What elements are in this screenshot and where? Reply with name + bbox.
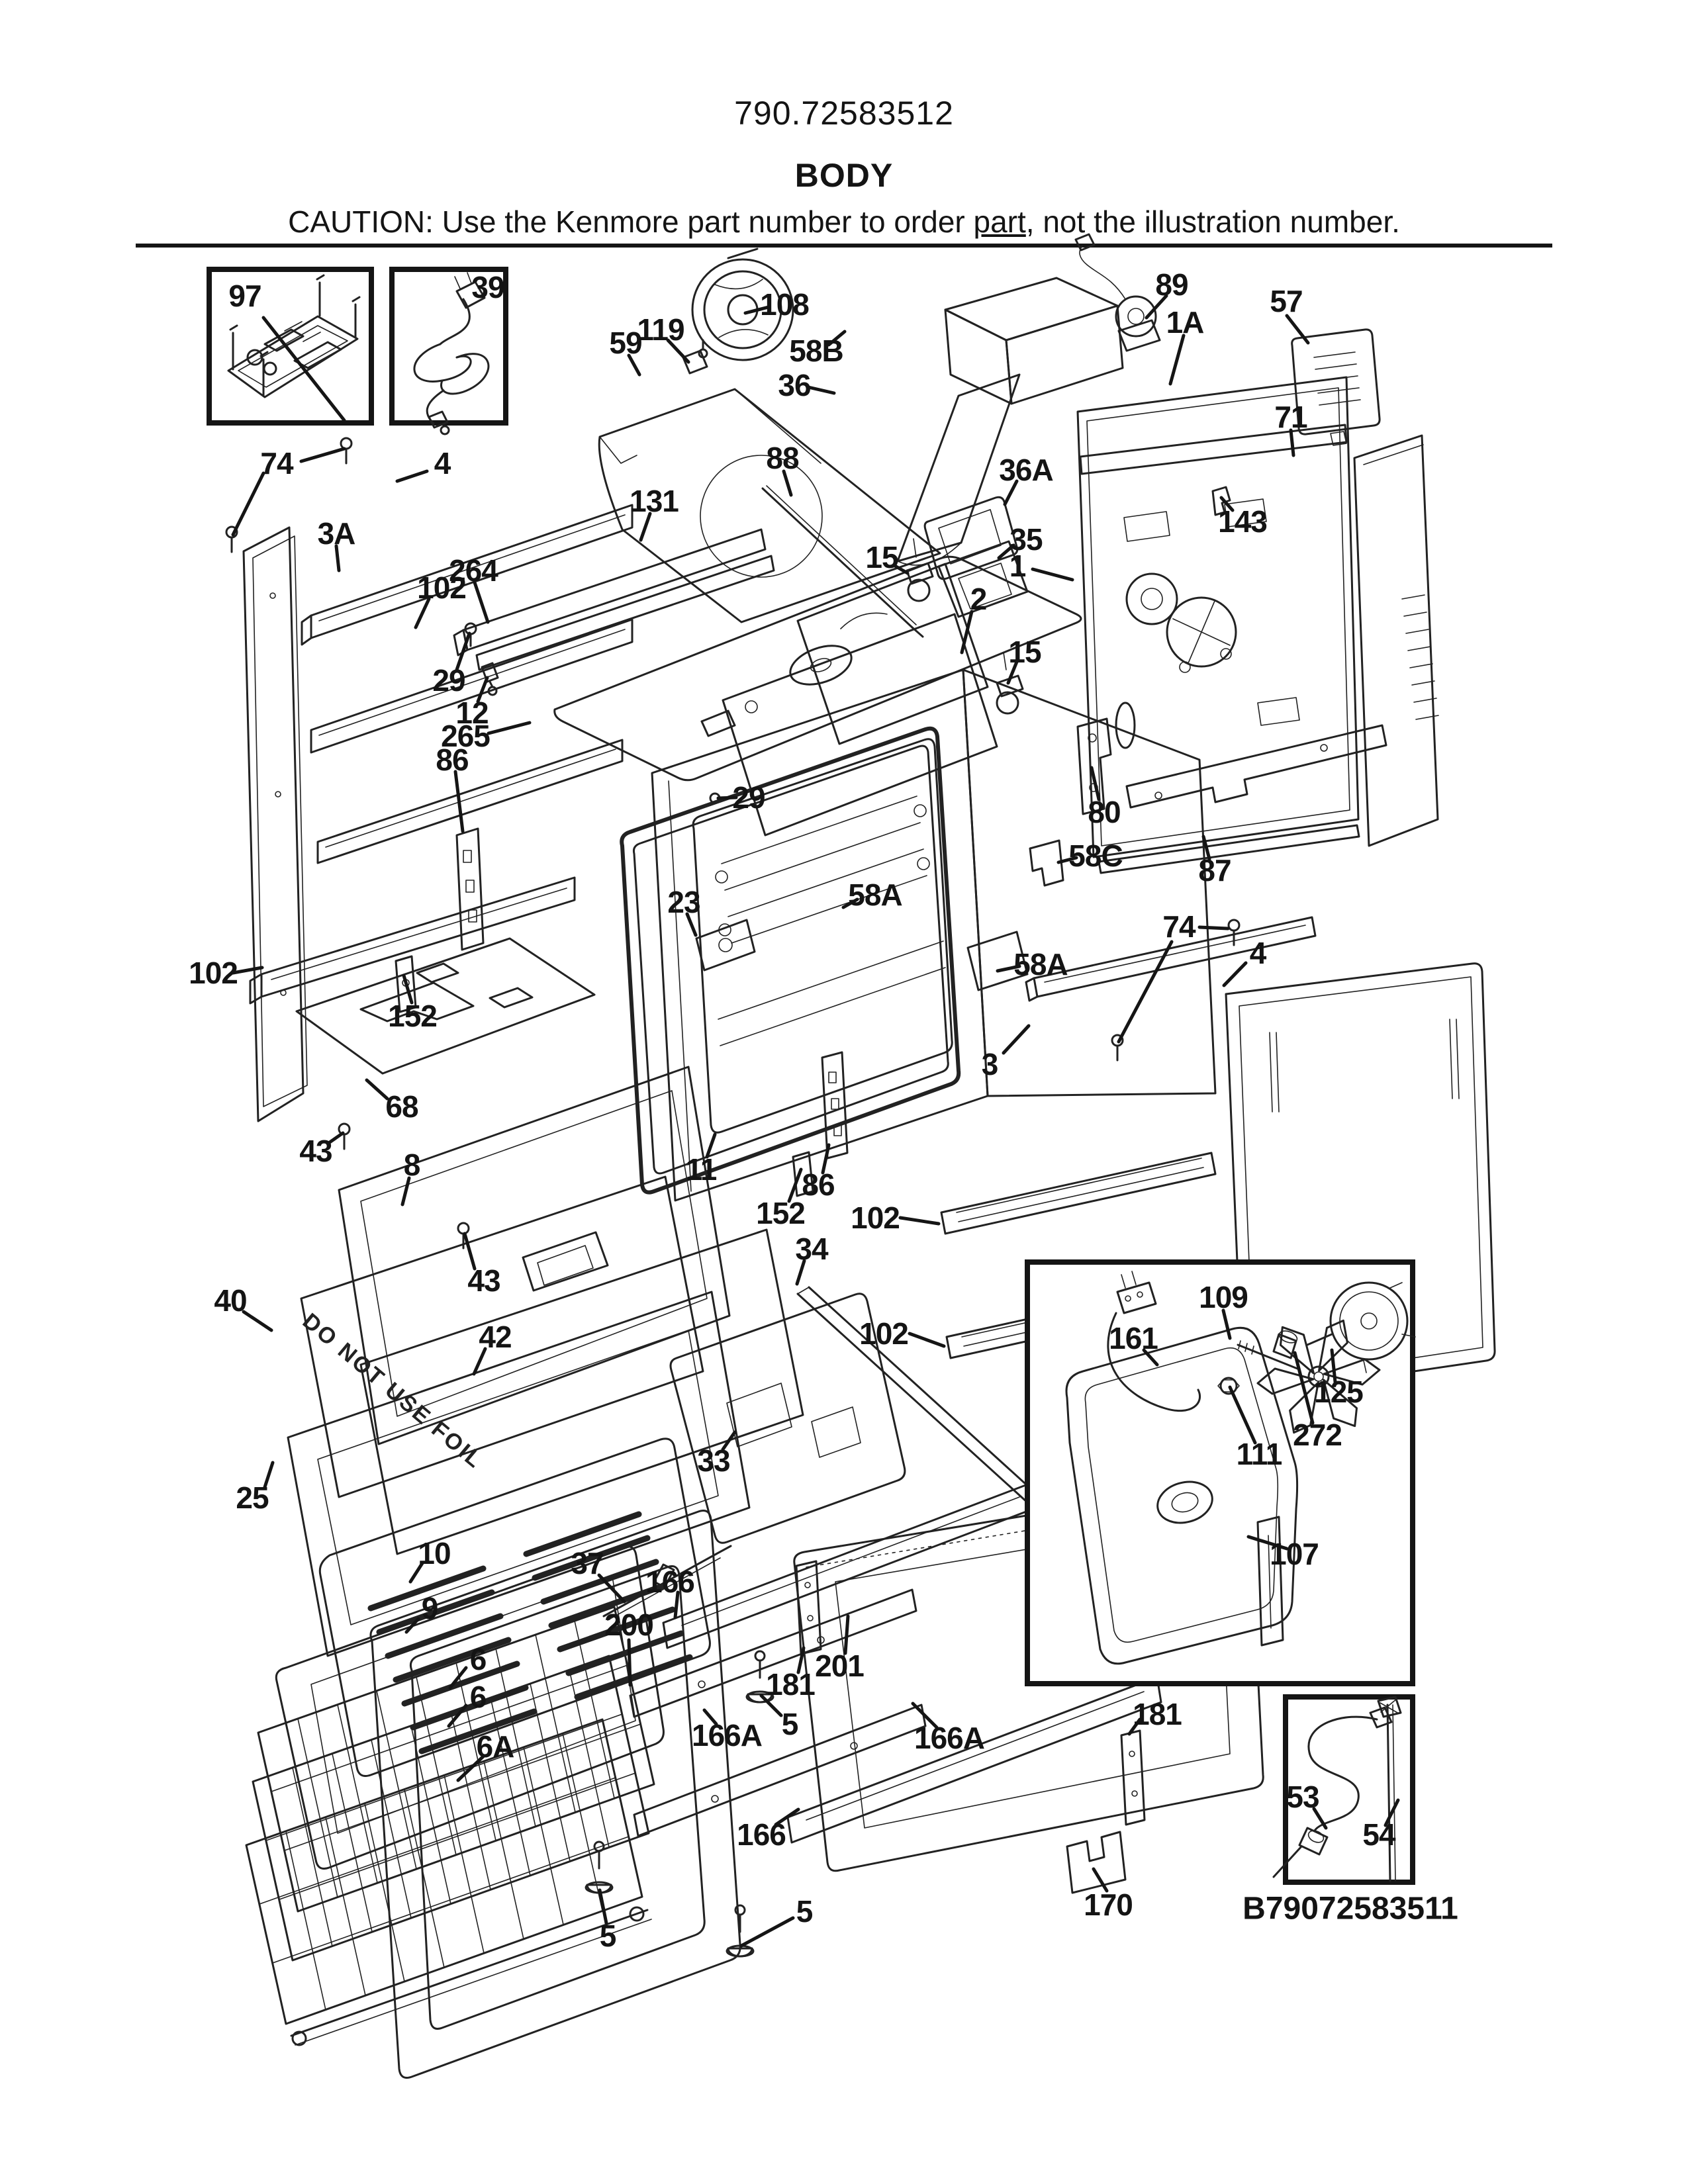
part-label-68: 68 [385, 1089, 418, 1124]
part-label-53: 53 [1286, 1779, 1319, 1815]
part-label-1: 1 [1009, 548, 1026, 584]
part-label-40: 40 [214, 1283, 246, 1318]
part-label-58C: 58C [1068, 838, 1122, 874]
part-label-5: 5 [600, 1918, 616, 1954]
part-label-15: 15 [865, 539, 898, 575]
part-label-23: 23 [667, 884, 700, 920]
part-label-107: 107 [1270, 1536, 1319, 1572]
part-label-161: 161 [1109, 1320, 1158, 1356]
part-label-6: 6 [470, 1641, 487, 1677]
part-label-97: 97 [228, 278, 261, 314]
part-label-39: 39 [471, 269, 504, 305]
part-label-59: 59 [609, 325, 641, 361]
part-label-58B: 58B [789, 333, 843, 369]
part-label-37: 37 [571, 1545, 603, 1581]
part-label-80: 80 [1088, 794, 1120, 830]
part-label-58A: 58A [1013, 946, 1067, 982]
part-label-29: 29 [432, 662, 465, 698]
part-label-264: 264 [449, 553, 498, 588]
part-label-119: 119 [637, 312, 684, 347]
part-label-6A: 6A [477, 1729, 514, 1764]
part-label-33: 33 [697, 1443, 729, 1479]
part-label-109: 109 [1199, 1279, 1248, 1315]
part-label-10: 10 [418, 1535, 450, 1571]
part-label-131: 131 [630, 483, 679, 519]
part-label-87: 87 [1198, 852, 1231, 888]
part-label-170: 170 [1084, 1887, 1133, 1923]
part-label-102: 102 [859, 1316, 908, 1351]
part-label-201: 201 [815, 1648, 864, 1684]
part-label-86: 86 [802, 1167, 834, 1203]
part-label-71: 71 [1274, 399, 1307, 435]
part-label-3: 3 [982, 1046, 998, 1082]
part-label-5: 5 [782, 1706, 798, 1742]
part-label-143: 143 [1218, 504, 1267, 539]
part-label-111: 111 [1237, 1436, 1282, 1472]
part-label-11: 11 [686, 1152, 717, 1187]
part-label-166: 166 [645, 1564, 694, 1600]
diagram-code: B79072583511 [1243, 1891, 1458, 1927]
part-label-57: 57 [1270, 283, 1302, 319]
part-label-9: 9 [422, 1590, 438, 1626]
part-label-108: 108 [760, 287, 809, 322]
part-label-36: 36 [778, 367, 810, 403]
part-label-1A: 1A [1166, 304, 1204, 340]
part-label-4: 4 [434, 445, 451, 481]
part-label-152: 152 [388, 998, 437, 1034]
part-label-181: 181 [766, 1666, 815, 1702]
part-label-272: 272 [1293, 1417, 1342, 1453]
part-label-54: 54 [1362, 1817, 1395, 1852]
part-label-74: 74 [1162, 909, 1195, 944]
parts-diagram-page: { "header": { "model_number": "790.72583… [0, 0, 1688, 2184]
part-label-200: 200 [604, 1607, 653, 1643]
part-label-89: 89 [1155, 267, 1188, 302]
part-label-152: 152 [756, 1195, 805, 1231]
part-label-29: 29 [732, 780, 765, 815]
part-label-42: 42 [479, 1319, 511, 1355]
part-label-74: 74 [260, 445, 293, 481]
part-label-102: 102 [189, 955, 238, 991]
part-label-4: 4 [1250, 935, 1266, 971]
part-label-43: 43 [467, 1263, 500, 1298]
part-label-88: 88 [766, 440, 798, 476]
part-labels: B79072583511 97397443A102264291226586102… [0, 0, 1688, 2184]
part-label-43: 43 [299, 1133, 332, 1169]
part-label-25: 25 [236, 1480, 268, 1516]
part-label-6: 6 [470, 1679, 487, 1715]
part-label-15: 15 [1008, 634, 1041, 670]
part-label-3A: 3A [318, 516, 355, 551]
part-label-166A: 166A [914, 1720, 984, 1756]
part-label-8: 8 [404, 1147, 420, 1183]
part-label-86: 86 [436, 742, 468, 778]
part-label-2: 2 [970, 581, 987, 617]
part-label-125: 125 [1314, 1374, 1363, 1410]
part-label-36A: 36A [999, 452, 1053, 488]
part-label-181: 181 [1133, 1696, 1182, 1732]
part-label-58A: 58A [848, 877, 902, 913]
part-label-166A: 166A [692, 1717, 762, 1753]
part-label-102: 102 [851, 1200, 900, 1236]
part-label-166: 166 [737, 1817, 786, 1852]
part-label-5: 5 [796, 1893, 813, 1929]
part-label-34: 34 [795, 1231, 827, 1267]
